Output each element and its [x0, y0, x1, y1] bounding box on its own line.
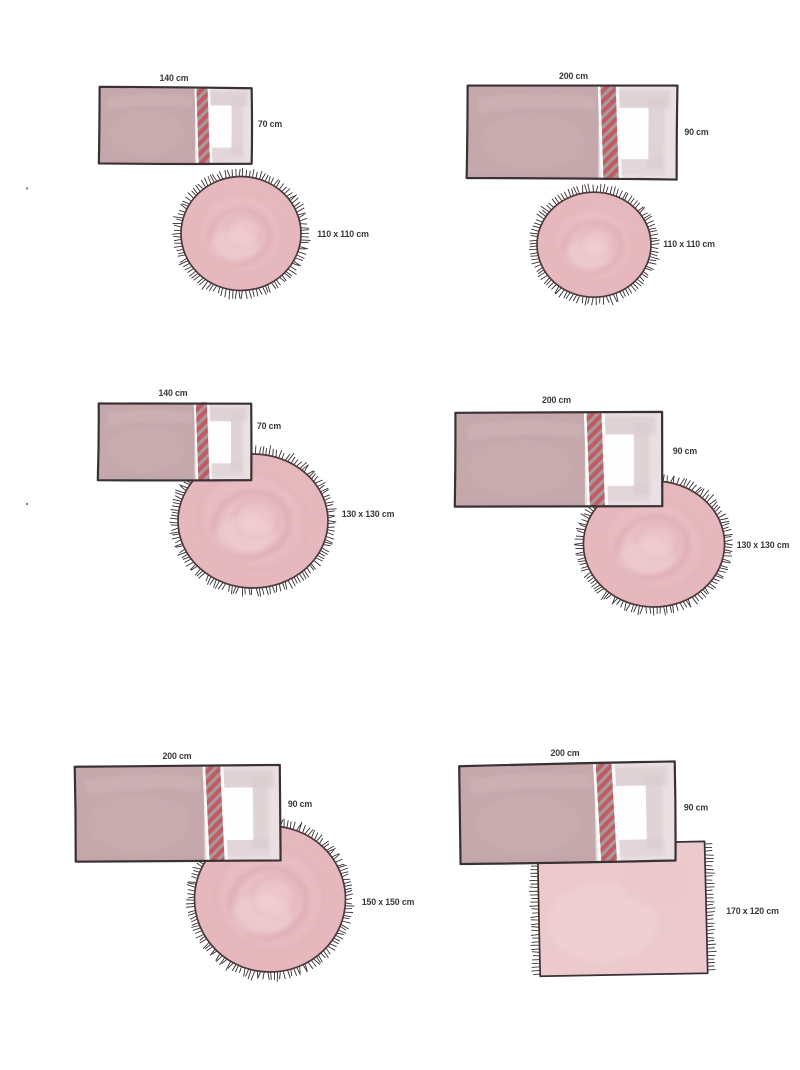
svg-text:90 cm: 90 cm: [684, 803, 709, 813]
svg-text:200 cm: 200 cm: [559, 71, 588, 81]
svg-text:170 x 120 cm: 170 x 120 cm: [726, 906, 779, 916]
svg-text:140 cm: 140 cm: [159, 388, 188, 398]
svg-text:200 cm: 200 cm: [551, 748, 580, 758]
svg-text:200 cm: 200 cm: [542, 395, 571, 405]
svg-text:70 cm: 70 cm: [257, 421, 282, 431]
svg-text:200 cm: 200 cm: [163, 751, 192, 761]
svg-text:130 x 130 cm: 130 x 130 cm: [737, 540, 790, 550]
svg-text:140 cm: 140 cm: [160, 73, 189, 83]
svg-text:110 x 110 cm: 110 x 110 cm: [317, 229, 369, 239]
svg-text:130 x 130 cm: 130 x 130 cm: [342, 509, 395, 519]
svg-text:70 cm: 70 cm: [258, 119, 283, 129]
svg-text:110 x 110 cm: 110 x 110 cm: [663, 239, 715, 249]
svg-text:90 cm: 90 cm: [673, 446, 698, 456]
svg-text:90 cm: 90 cm: [288, 799, 313, 809]
svg-text:150 x 150 cm: 150 x 150 cm: [362, 897, 415, 907]
svg-text:90 cm: 90 cm: [684, 127, 709, 137]
